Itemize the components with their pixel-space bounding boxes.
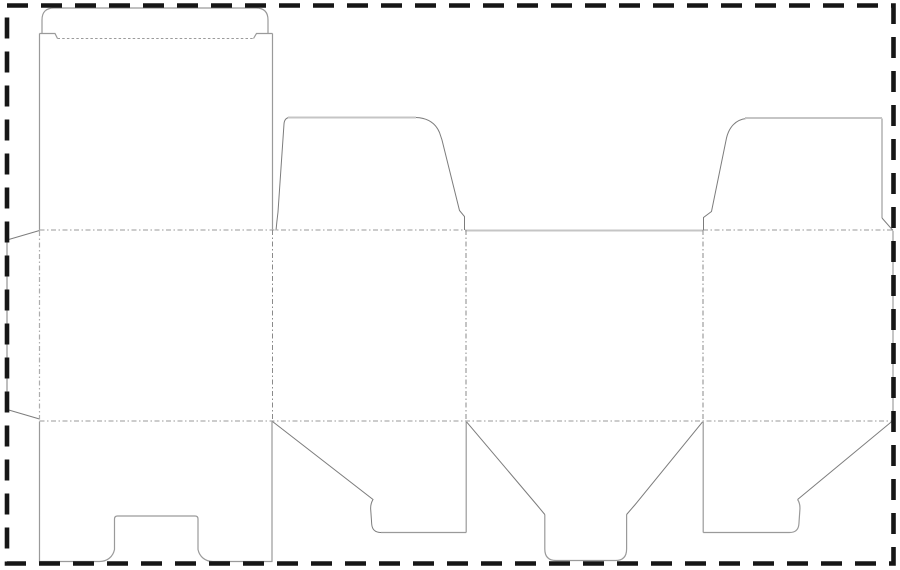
flap4-bottom-hook [790, 500, 800, 533]
flap2-bottom-left-diagonal [273, 422, 382, 533]
tuck-flap-right-shoulder [254, 34, 273, 39]
tuck-flap-left-shoulder [40, 34, 58, 39]
flap2-right-edge [416, 118, 465, 231]
panel1-bottom-outline [40, 422, 273, 562]
flap3-bottom-left-diagonal [467, 422, 545, 515]
sheet-border [7, 6, 894, 564]
glue-flap-outline [7, 231, 40, 420]
flap4-left-edge [704, 119, 747, 231]
dieline-sheet [0, 0, 900, 570]
tuck-flap-outline [42, 8, 268, 34]
flap2-left-edge [276, 118, 290, 231]
flap3-bottom-right-diagonal [627, 422, 703, 515]
flap4-bottom-right-diagonal [798, 421, 893, 500]
dieline-drawing [0, 0, 900, 570]
flap3-tongue [545, 515, 627, 561]
